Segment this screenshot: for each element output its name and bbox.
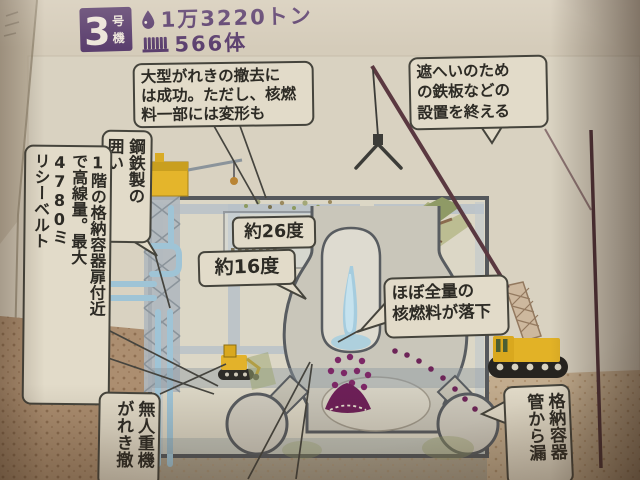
callout-well-temperature: 約16度 (198, 249, 297, 288)
newspaper-photo: 3 号機 1万3220トン 566体 大型がれき (0, 0, 640, 480)
unit-badge: 3 号機 (79, 7, 132, 52)
callout-fuel-fallen: ほぼ全量の 核燃料が落下 (383, 274, 510, 338)
fuel-assembly-icon (141, 34, 169, 53)
unit-number: 3 (84, 13, 111, 51)
callout-shield-plates: 遮へいのため の鉄板などの 設置を終える (408, 55, 548, 131)
callout-unmanned-machine: 無人重機 がれき撤 (97, 391, 161, 480)
callout-pool-temperature: 約26度 (232, 215, 317, 249)
unit-stats: 1万3220トン 566体 (140, 2, 313, 57)
callout-containment-leak: 格納容器 管から漏 (503, 384, 574, 480)
unit-suffix: 号機 (112, 12, 128, 46)
fuel-count: 566体 (174, 26, 248, 58)
water-drop-icon (140, 9, 156, 29)
reactor-pressure-vessel (322, 228, 380, 352)
unit-header: 3 号機 1万3220トン 566体 (79, 2, 313, 58)
callout-high-radiation: 1階の格納容器扉付近 で高線量。最大 4780ミ リシーベルト (22, 145, 113, 406)
callout-debris-removal: 大型がれきの撤去に は成功。ただし、核燃 料一部には変形も (133, 61, 315, 129)
fuel-stat: 566体 (141, 27, 314, 57)
